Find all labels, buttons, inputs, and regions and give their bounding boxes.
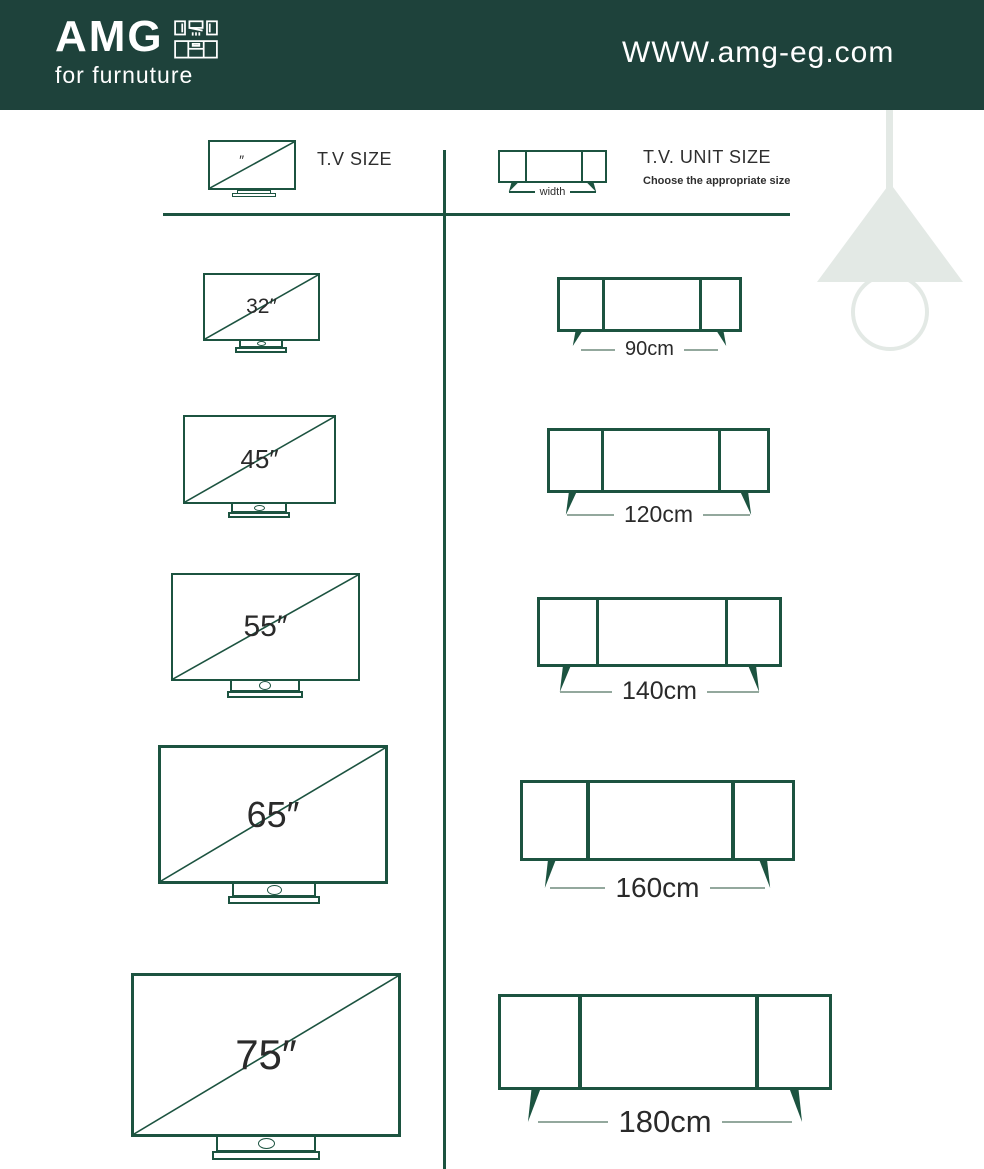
label-line: [570, 191, 596, 193]
unit-divider: [602, 280, 605, 329]
label-line: [581, 349, 615, 351]
column-divider-line: [443, 150, 446, 1169]
tv-diagram-45: 45″: [183, 415, 336, 504]
tv-size-label: 55″: [240, 610, 292, 644]
header-underline: [163, 213, 790, 216]
tv-stand: [235, 339, 287, 353]
right-column-title: T.V. UNIT SIZE: [643, 147, 771, 168]
unit-size-text: 160cm: [615, 872, 699, 904]
unit-diagram-180cm: [498, 994, 832, 1090]
tv-legend-icon: ″: [208, 140, 296, 190]
unit-divider: [601, 431, 604, 490]
unit-divider: [731, 783, 735, 858]
unit-divider: [699, 280, 702, 329]
label-line: [550, 887, 605, 889]
tv-stand: [227, 679, 303, 698]
tv-diagram-65: 65″: [158, 745, 388, 884]
width-label-row: width: [498, 186, 607, 198]
logo: AMG for furnuture: [55, 14, 218, 89]
unit-diagram-90cm: [557, 277, 742, 332]
unit-divider: [581, 152, 583, 181]
unit-diagram-140cm: [537, 597, 782, 667]
tv-diagonal-line: [210, 142, 294, 188]
right-column-subtitle: Choose the appropriate size: [643, 175, 790, 187]
pendant-lamp-illustration: [805, 110, 975, 360]
unit-width-label: 160cm: [520, 872, 795, 904]
label-line: [538, 1121, 608, 1123]
unit-divider: [586, 783, 590, 858]
unit-size-text: 120cm: [624, 501, 693, 528]
unit-width-label: 120cm: [547, 501, 770, 528]
tv-stand: [212, 1135, 320, 1160]
label-line: [722, 1121, 792, 1123]
label-line: [567, 514, 614, 516]
unit-width-label: 90cm: [557, 338, 742, 361]
unit-size-text: 140cm: [622, 677, 697, 706]
kitchen-cabinets-icon: [174, 20, 218, 60]
tv-size-label: 65″: [243, 794, 304, 836]
unit-divider: [596, 600, 599, 664]
tv-size-label: 32″: [242, 295, 281, 319]
unit-legend-icon: [498, 150, 607, 183]
unit-diagram-120cm: [547, 428, 770, 493]
tv-stand: [228, 502, 290, 518]
logo-tagline: for furnuture: [55, 62, 218, 89]
tv-diagram-75: 75″: [131, 973, 401, 1137]
label-line: [560, 691, 612, 693]
tv-diagram-32: 32″: [203, 273, 320, 341]
unit-divider: [525, 152, 527, 181]
label-line: [684, 349, 718, 351]
header-band: AMG for furnuture WWW.amg-eg.com: [0, 0, 984, 110]
label-line: [703, 514, 750, 516]
unit-divider: [725, 600, 728, 664]
logo-text: AMG: [55, 14, 164, 60]
tv-size-label: 45″: [236, 444, 282, 475]
label-line: [509, 191, 535, 193]
unit-size-text: 180cm: [618, 1104, 711, 1140]
tv-stand: [228, 882, 320, 904]
tv-size-label: 75″: [231, 1031, 301, 1079]
left-column-title: T.V SIZE: [317, 149, 392, 170]
inch-mark: ″: [239, 152, 244, 168]
unit-divider: [718, 431, 721, 490]
tv-legend-stand-base: [232, 193, 276, 197]
tv-diagram-55: 55″: [171, 573, 360, 681]
unit-size-text: 90cm: [625, 338, 674, 361]
unit-divider: [578, 997, 582, 1087]
width-label: width: [540, 186, 566, 198]
unit-width-label: 140cm: [537, 677, 782, 706]
label-line: [707, 691, 759, 693]
tv-size-guide-infographic: AMG for furnuture WWW.amg-eg.com: [0, 0, 984, 1169]
unit-diagram-160cm: [520, 780, 795, 861]
unit-width-label: 180cm: [498, 1104, 832, 1140]
label-line: [710, 887, 765, 889]
website-url: WWW.amg-eg.com: [622, 36, 894, 70]
unit-divider: [755, 997, 759, 1087]
